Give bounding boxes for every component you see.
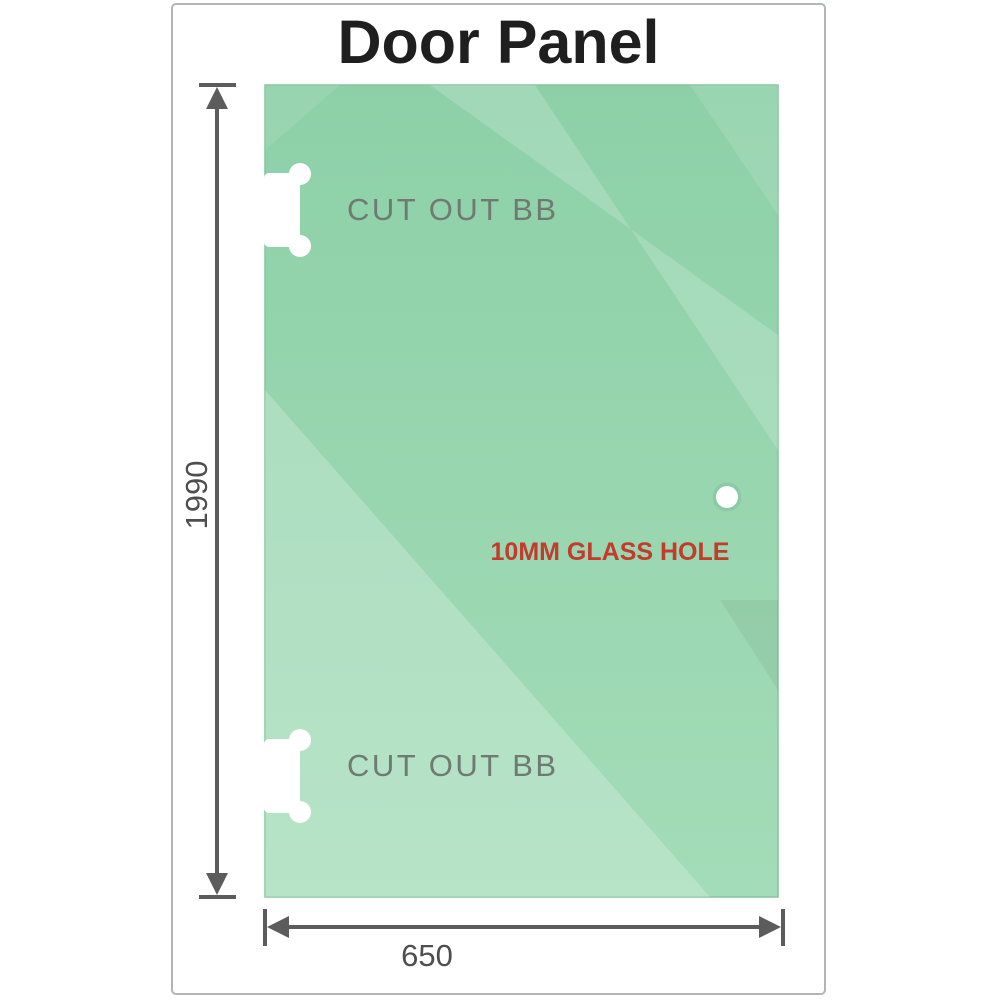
hinge-cutout-bottom-body	[264, 739, 300, 813]
width-dimension-arrow-right	[759, 916, 781, 938]
hinge-cutout-top-lower-lobe	[289, 235, 311, 257]
hinge-cutout-top-body	[264, 173, 300, 247]
hinge-cutout-top-upper-lobe	[289, 163, 311, 185]
width-dimension-arrow-left	[267, 916, 289, 938]
door-panel-diagram: CUT OUT BB CUT OUT BB 10MM GLASS HOLE 19…	[0, 0, 1000, 1000]
cutout-bottom-label: CUT OUT BB	[347, 748, 559, 783]
door-panel-drawing: Door Panel	[0, 0, 1000, 1000]
glass-hole	[713, 483, 742, 512]
hinge-cutout-bottom-lower-lobe	[289, 801, 311, 823]
height-dimension-arrow-up	[206, 87, 228, 109]
height-dimension-arrow-down	[206, 873, 228, 895]
width-dimension-label: 650	[401, 938, 453, 973]
height-dimension-label: 1990	[179, 461, 214, 530]
glass-hole-opening	[716, 486, 738, 508]
cutout-top-label: CUT OUT BB	[347, 192, 559, 227]
glass-hole-label: 10MM GLASS HOLE	[491, 538, 730, 566]
hinge-cutout-bottom-upper-lobe	[289, 729, 311, 751]
width-dimension	[265, 909, 783, 946]
